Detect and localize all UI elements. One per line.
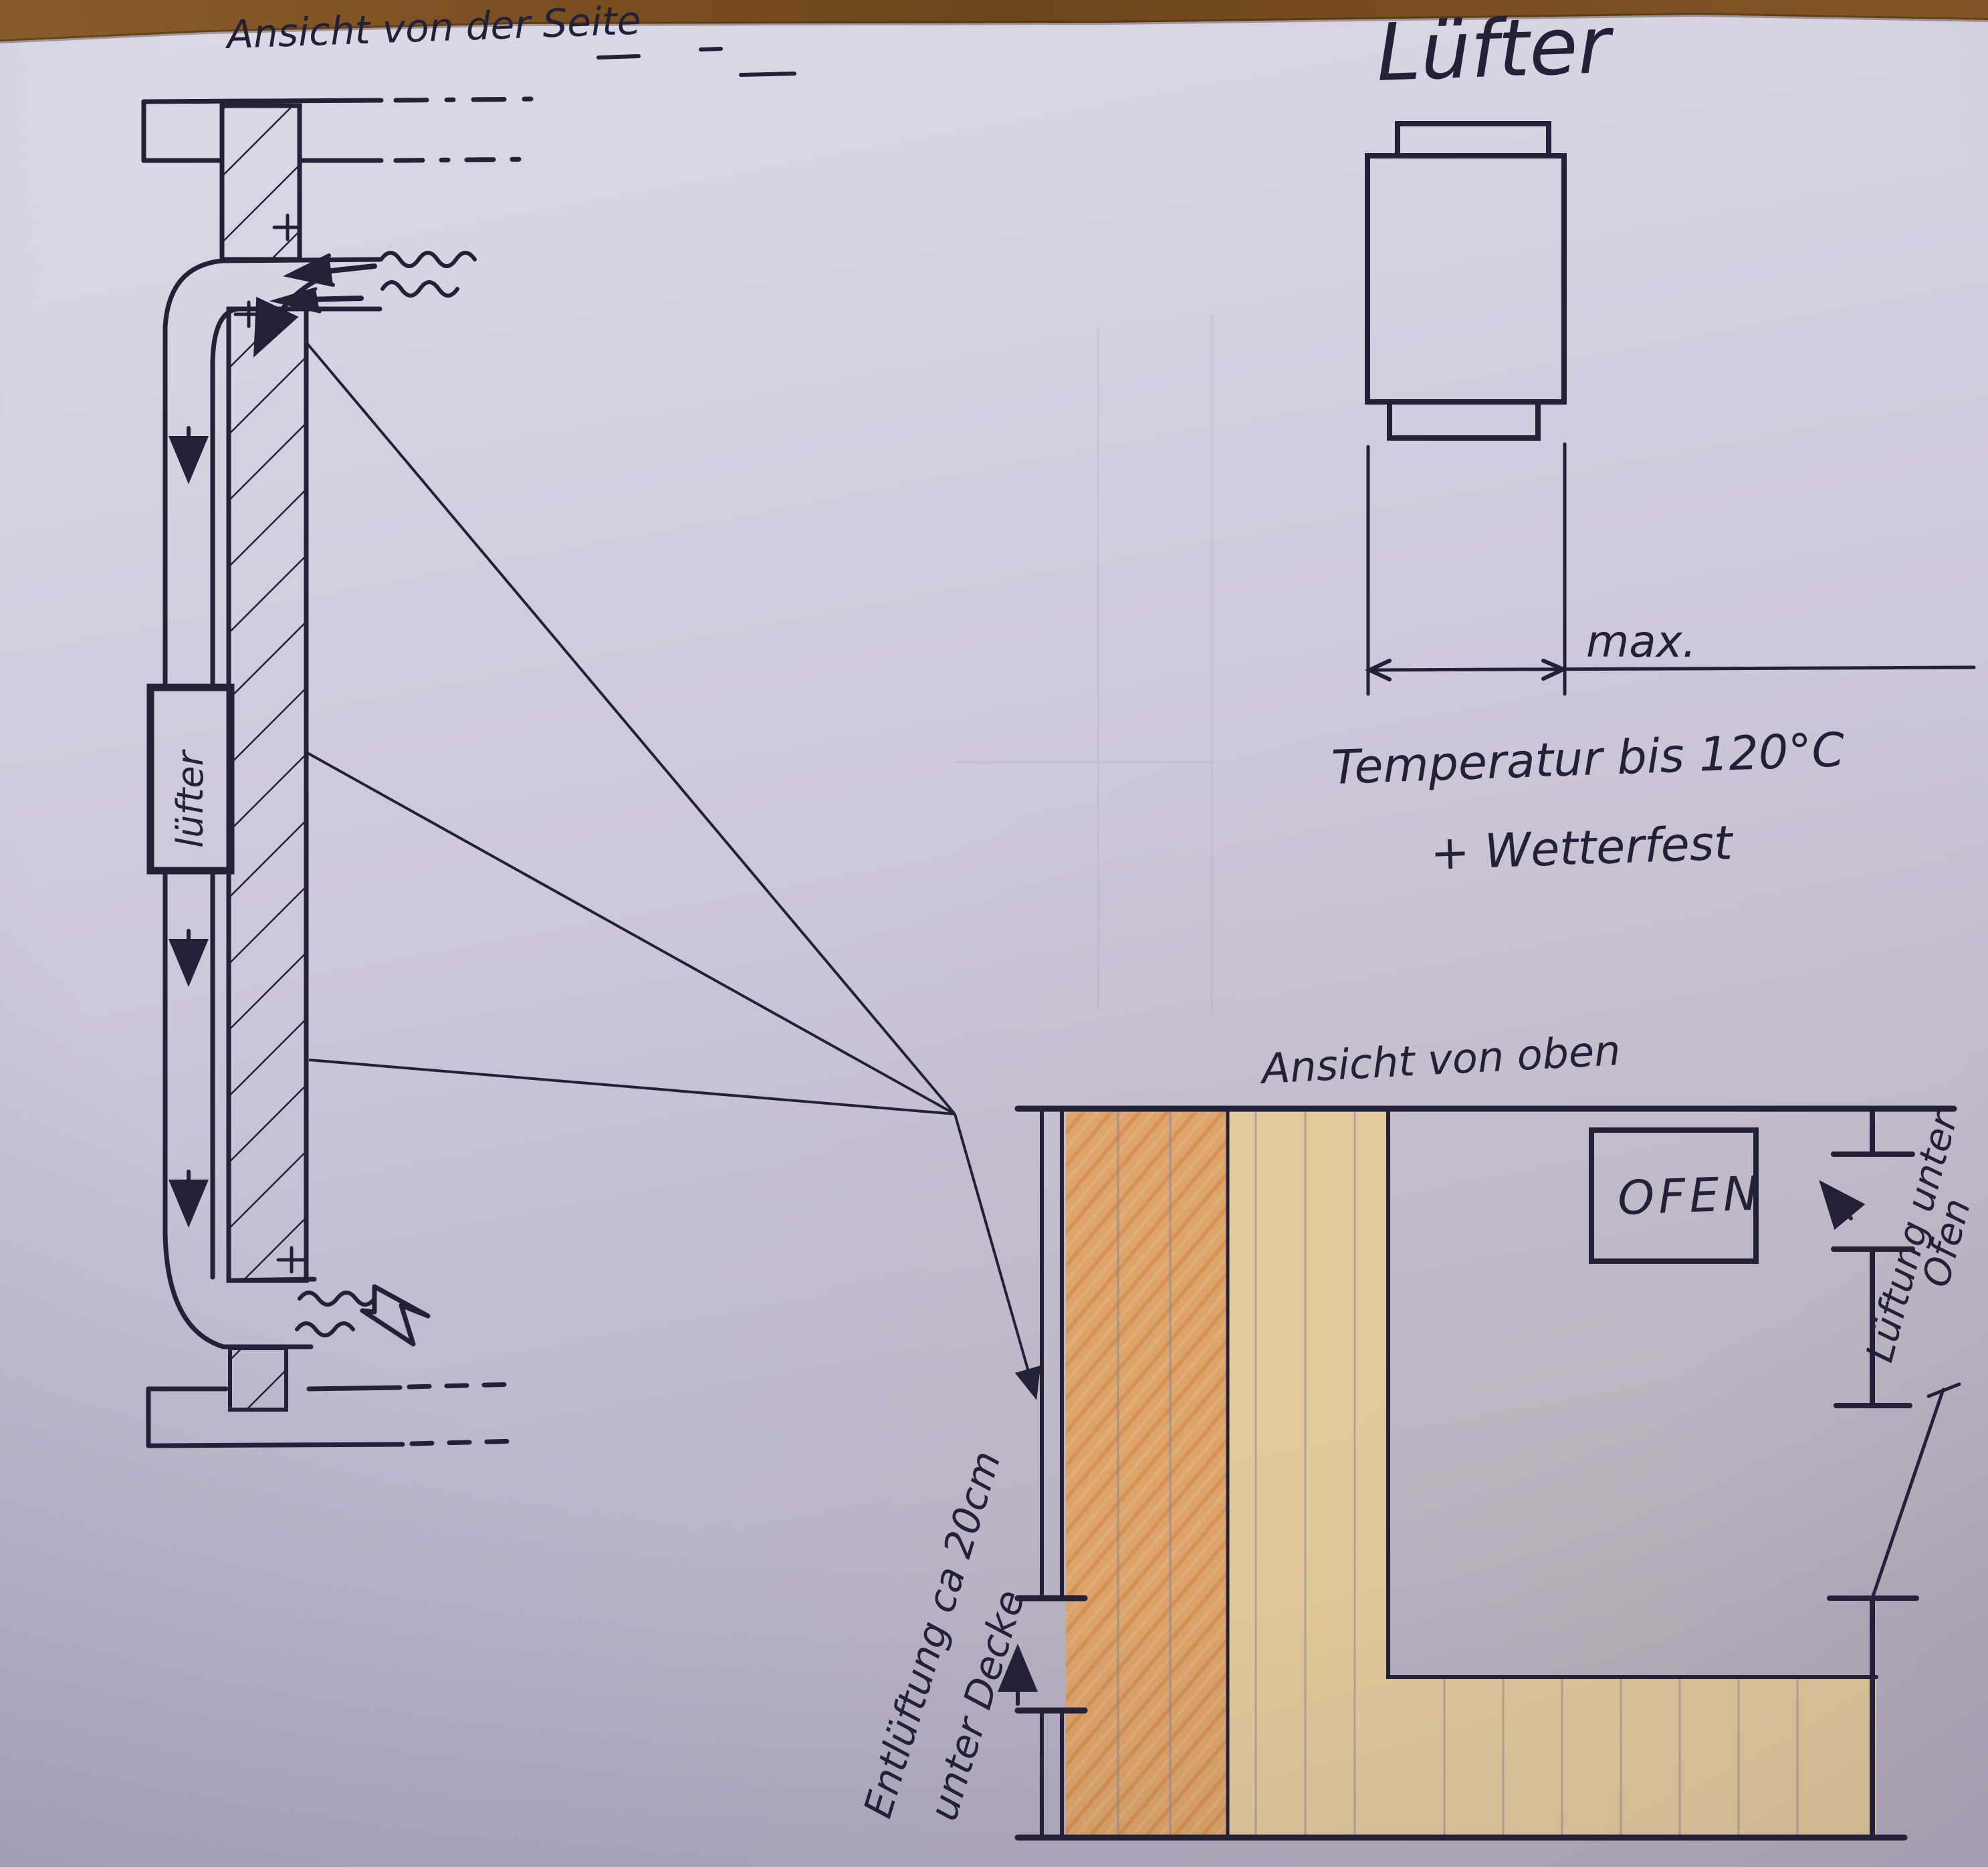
photo-vignette: [0, 0, 1988, 1867]
sketch-photo: Ansicht von der Seite: [0, 0, 1988, 1867]
hand-drawing: Ansicht von der Seite: [0, 0, 1988, 1867]
